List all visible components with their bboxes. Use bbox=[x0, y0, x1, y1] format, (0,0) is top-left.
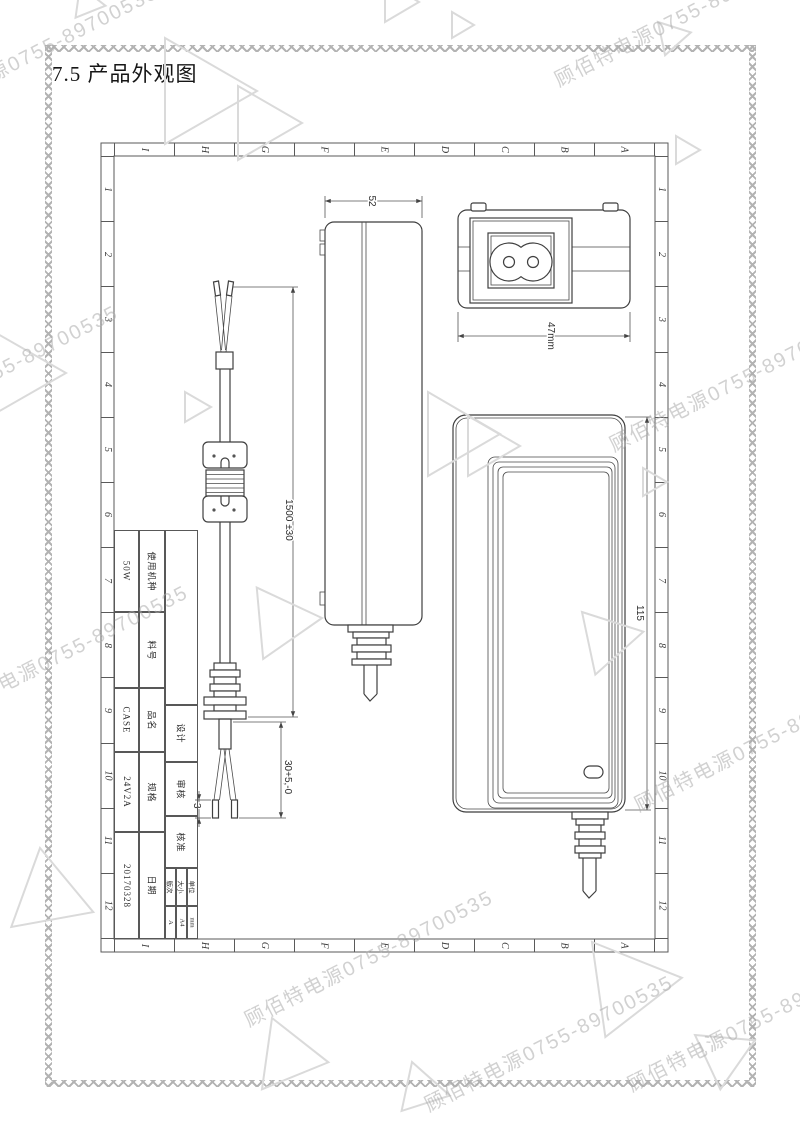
title-block: 50W 使用机种 料号 CASE 品名 24V2A 规格 20170328 日期… bbox=[114, 530, 198, 939]
zone-number: 2 bbox=[655, 221, 668, 286]
zone-number: 9 bbox=[655, 677, 668, 742]
zone-number: 8 bbox=[101, 612, 114, 677]
tb-value-date: 20170328 bbox=[114, 832, 139, 939]
zone-number: 12 bbox=[101, 873, 114, 939]
zone-strip-left: 123456789101112 bbox=[101, 156, 114, 939]
zone-letter: C bbox=[474, 143, 534, 156]
zone-number: 11 bbox=[101, 808, 114, 873]
zone-strip-top: IHGFEDCBA bbox=[101, 143, 668, 156]
zone-strip-right: 123456789101112 bbox=[655, 156, 668, 939]
zone-number: 6 bbox=[101, 482, 114, 547]
zone-number: 3 bbox=[655, 286, 668, 351]
zone-letter: G bbox=[234, 939, 294, 952]
zone-letter: G bbox=[234, 143, 294, 156]
tb-label-partno: 料号 bbox=[139, 612, 165, 688]
zone-letter: B bbox=[534, 143, 594, 156]
zone-letter: D bbox=[414, 939, 474, 952]
tb-value-spec: 24V2A bbox=[114, 752, 139, 832]
zone-number: 4 bbox=[655, 352, 668, 417]
zone-number: 10 bbox=[655, 743, 668, 808]
zone-number: 7 bbox=[101, 547, 114, 612]
zone-letter: A bbox=[594, 939, 655, 952]
tb-checked-cell: 审核 bbox=[165, 762, 198, 816]
tb-label-date: 日期 bbox=[139, 832, 165, 939]
drawing-page: 7.5 产品外观图 bbox=[0, 0, 800, 1132]
tb-approved-cell: 核准 bbox=[165, 816, 198, 868]
zone-letter: I bbox=[114, 939, 174, 952]
adapter-inlet-view: 47mm bbox=[458, 203, 630, 350]
zone-letter: C bbox=[474, 939, 534, 952]
zone-number: 1 bbox=[655, 156, 668, 221]
zone-strip-bottom: IHGFEDCBA bbox=[101, 939, 668, 952]
tb-label-spec: 规格 bbox=[139, 752, 165, 832]
zone-letter: E bbox=[354, 143, 414, 156]
zone-number: 1 bbox=[101, 156, 114, 221]
zone-number: 2 bbox=[101, 221, 114, 286]
tb-size-value: A4 bbox=[176, 906, 187, 939]
adapter-side-view: 52 bbox=[320, 195, 422, 701]
tb-label-machine: 使用机种 bbox=[139, 530, 165, 612]
zone-number: 7 bbox=[655, 547, 668, 612]
zone-letter: F bbox=[294, 939, 354, 952]
zone-number: 11 bbox=[655, 808, 668, 873]
dim-length: 115 bbox=[634, 605, 645, 621]
tb-rev-label: 版次 bbox=[165, 868, 176, 906]
output-cable-view: 1500 ±30 30+5,-0 3 bbox=[191, 281, 298, 827]
dim-width: 47mm bbox=[545, 322, 556, 350]
zone-number: 4 bbox=[101, 352, 114, 417]
zone-number: 8 bbox=[655, 612, 668, 677]
dim-split-length: 30+5,-0 bbox=[282, 760, 293, 795]
tb-designed-cell: 设计 bbox=[165, 705, 198, 762]
zone-letter: H bbox=[174, 939, 234, 952]
zone-letter: I bbox=[114, 143, 174, 156]
c8-socket-icon bbox=[490, 243, 552, 281]
tb-size-label: 大小 bbox=[176, 868, 187, 906]
tb-label-product: 品名 bbox=[139, 688, 165, 752]
zone-letter: B bbox=[534, 939, 594, 952]
zone-number: 5 bbox=[655, 417, 668, 482]
zone-number: 10 bbox=[101, 743, 114, 808]
zone-number: 9 bbox=[101, 677, 114, 742]
zone-number: 12 bbox=[655, 873, 668, 939]
zone-number: 6 bbox=[655, 482, 668, 547]
zone-letter: E bbox=[354, 939, 414, 952]
zone-letter: A bbox=[594, 143, 655, 156]
adapter-top-view: 115 bbox=[453, 415, 651, 898]
tb-value-machine: 50W bbox=[114, 530, 139, 612]
tb-company-cell bbox=[165, 530, 198, 705]
tb-value-partno bbox=[114, 612, 139, 688]
tb-unit-label: 单位 bbox=[187, 868, 198, 906]
dim-thickness: 52 bbox=[366, 195, 377, 207]
zone-letter: D bbox=[414, 143, 474, 156]
zone-letter: H bbox=[174, 143, 234, 156]
zone-letter: F bbox=[294, 143, 354, 156]
tb-rev-value: A bbox=[165, 906, 176, 939]
zone-number: 3 bbox=[101, 286, 114, 351]
tb-unit-value: mm bbox=[187, 906, 198, 939]
tb-value-product: CASE bbox=[114, 688, 139, 752]
zone-number: 5 bbox=[101, 417, 114, 482]
dim-cable-length: 1500 ±30 bbox=[283, 499, 294, 541]
